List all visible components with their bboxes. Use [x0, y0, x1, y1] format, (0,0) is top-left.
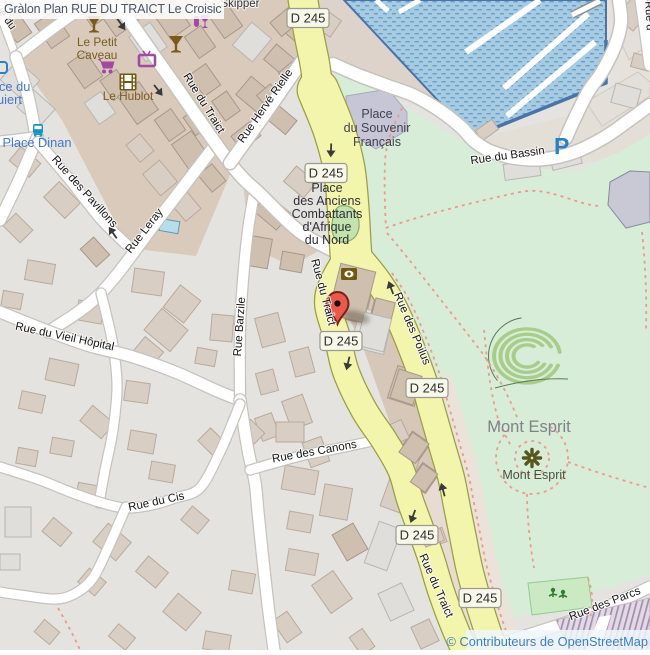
svg-text:Le Petit: Le Petit [77, 35, 118, 49]
svg-text:P: P [554, 133, 569, 159]
svg-text:© Contributeurs de OpenStreetM: © Contributeurs de OpenStreetMap [447, 634, 649, 649]
svg-text:Place: Place [311, 181, 342, 195]
svg-text:du Nord: du Nord [305, 233, 350, 247]
svg-text:Gràlon Plan RUE DU TRAICT Le C: Gràlon Plan RUE DU TRAICT Le Croisic [4, 2, 221, 16]
svg-text:du Souvenir: du Souvenir [344, 121, 411, 135]
svg-text:D 245: D 245 [309, 166, 344, 181]
svg-text:Place: Place [361, 107, 392, 121]
svg-text:d'Afrique: d'Afrique [303, 220, 352, 234]
svg-text:Mont Esprit: Mont Esprit [502, 468, 566, 482]
svg-text:D 245: D 245 [324, 334, 359, 349]
svg-text:des Anciens: des Anciens [293, 194, 360, 208]
svg-text:D 245: D 245 [291, 11, 326, 26]
svg-text:D 245: D 245 [410, 381, 445, 396]
svg-text:Le Hublot: Le Hublot [103, 89, 154, 103]
svg-text:D 245: D 245 [463, 591, 498, 606]
svg-text:uiert: uiert [0, 92, 22, 107]
svg-text:Combattants: Combattants [292, 207, 363, 221]
svg-text:Caveau: Caveau [77, 48, 118, 62]
svg-text:D 245: D 245 [400, 528, 435, 543]
svg-text:Mont Esprit: Mont Esprit [487, 418, 571, 436]
svg-text:Place Dinan: Place Dinan [2, 135, 71, 150]
svg-text:Skipper: Skipper [221, 0, 260, 10]
svg-text:Français: Français [353, 135, 401, 149]
